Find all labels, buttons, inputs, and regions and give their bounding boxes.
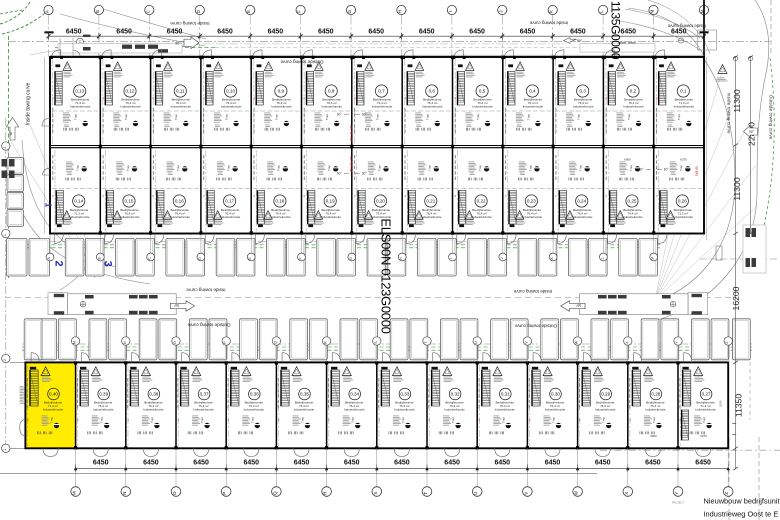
svg-text:Industriefunctie: Industriefunctie [171, 105, 192, 109]
svg-text:16200: 16200 [731, 286, 741, 310]
svg-text:90°: 90° [175, 42, 181, 46]
svg-text:Trap: Trap [275, 114, 279, 120]
svg-text:0,11: 0,11 [176, 89, 185, 94]
svg-text:0,17: 0,17 [225, 199, 234, 204]
svg-text:6450: 6450 [570, 29, 586, 36]
svg-text:0,21: 0,21 [426, 199, 435, 204]
svg-text:6450: 6450 [344, 459, 360, 466]
svg-text:6450: 6450 [66, 29, 82, 36]
svg-text:0,7: 0,7 [378, 89, 385, 94]
svg-text:N: N [122, 492, 127, 495]
svg-text:X: X [625, 341, 629, 344]
svg-text:M: M [72, 491, 77, 495]
svg-text:Industriefunctie: Industriefunctie [472, 105, 493, 109]
svg-text:Industriefunctie: Industriefunctie [674, 105, 695, 109]
svg-text:G: G [349, 257, 353, 260]
svg-text:Trap: Trap [528, 165, 532, 171]
svg-text:Industriefunctie: Industriefunctie [93, 408, 114, 412]
svg-text:W: W [575, 340, 579, 344]
svg-text:11300: 11300 [732, 177, 742, 200]
svg-text:Outside towing curve: Outside towing curve [280, 60, 323, 65]
svg-text:Industriefunctie: Industriefunctie [193, 408, 214, 412]
svg-text:Industriefunctie: Industriefunctie [271, 105, 292, 109]
svg-text:6450: 6450 [294, 459, 310, 466]
svg-text:6450: 6450 [419, 29, 435, 36]
svg-text:M: M [650, 10, 655, 14]
svg-text:Trap: Trap [325, 114, 329, 120]
svg-text:S: S [374, 341, 378, 344]
svg-text:Trap: Trap [224, 114, 228, 120]
svg-text:6450: 6450 [167, 29, 183, 36]
svg-text:11300: 11300 [732, 89, 742, 112]
svg-text:Trap: Trap [602, 417, 606, 423]
svg-text:90°: 90° [575, 303, 581, 307]
svg-text:Inside towing curve: Inside towing curve [667, 24, 706, 29]
svg-text:Industriefunctie: Industriefunctie [673, 215, 694, 219]
svg-text:Trap: Trap [579, 165, 583, 171]
svg-text:6450: 6450 [116, 29, 132, 36]
svg-text:Industriefunctie: Industriefunctie [545, 408, 566, 412]
svg-text:Y: Y [674, 492, 679, 495]
svg-text:6450: 6450 [394, 459, 410, 466]
svg-text:60: 60 [254, 194, 256, 197]
svg-text:6450: 6450 [671, 29, 687, 36]
svg-text:0,18: 0,18 [275, 199, 284, 204]
svg-text:60: 60 [254, 96, 256, 99]
svg-text:Industriefunctie: Industriefunctie [444, 408, 465, 412]
svg-text:Industriefunctie: Industriefunctie [69, 215, 90, 219]
svg-text:0,35: 0,35 [300, 392, 309, 397]
svg-text:Trap: Trap [526, 114, 530, 120]
svg-text:Industriefunctie: Industriefunctie [119, 215, 140, 219]
svg-text:Trap: Trap [327, 165, 331, 171]
svg-text:6375: 6375 [680, 158, 687, 162]
svg-text:1: 1 [3, 234, 7, 236]
svg-text:Trap: Trap [375, 114, 379, 120]
svg-text:0,23: 0,23 [527, 199, 536, 204]
svg-text:Trap: Trap [428, 165, 432, 171]
svg-text:0,39: 0,39 [99, 392, 108, 397]
svg-text:Trap: Trap [277, 165, 281, 171]
svg-text:ELS00N 0123G0000: ELS00N 0123G0000 [379, 218, 394, 333]
svg-text:Industriefunctie: Industriefunctie [143, 408, 164, 412]
svg-text:Trap: Trap [176, 165, 180, 171]
svg-text:60°: 60° [337, 171, 343, 175]
svg-text:6450: 6450 [695, 459, 711, 466]
svg-text:0,28: 0,28 [651, 392, 660, 397]
svg-text:Industriefunctie: Industriefunctie [522, 215, 543, 219]
svg-text:O: O [172, 491, 177, 495]
svg-text:Industriefunctie: Industriefunctie [695, 408, 716, 412]
svg-text:0,19: 0,19 [326, 199, 335, 204]
svg-text:60°: 60° [362, 171, 368, 175]
svg-text:1: 1 [44, 203, 53, 208]
svg-text:Trap: Trap [250, 417, 254, 423]
svg-text:0,32: 0,32 [451, 392, 460, 397]
svg-text:F: F [299, 257, 303, 259]
svg-text:Industriefunctie: Industriefunctie [622, 215, 643, 219]
svg-text:P: P [222, 492, 227, 495]
svg-text:Trap: Trap [652, 417, 656, 423]
svg-text:0,20: 0,20 [376, 199, 385, 204]
svg-text:6450: 6450 [520, 29, 536, 36]
svg-text:H: H [397, 10, 402, 13]
svg-text:M: M [651, 257, 655, 260]
svg-text:0,8: 0,8 [328, 89, 335, 94]
svg-text:Industriefunctie: Industriefunctie [573, 105, 594, 109]
svg-text:Industriefunctie: Industriefunctie [523, 105, 544, 109]
svg-text:Trap: Trap [552, 417, 556, 423]
svg-text:Nieuwbouw bedrijfsunit: Nieuwbouw bedrijfsunit [704, 497, 780, 506]
svg-text:O: O [173, 341, 177, 344]
svg-text:90°: 90° [749, 130, 755, 134]
svg-text:Industriefunctie: Industriefunctie [294, 408, 315, 412]
svg-text:W: W [574, 490, 579, 495]
svg-text:Inside towing curve: Inside towing curve [726, 92, 732, 133]
svg-text:0,24: 0,24 [577, 199, 586, 204]
svg-text:0,2: 0,2 [630, 89, 637, 94]
svg-text:Trap: Trap [50, 417, 54, 423]
svg-text:Trap: Trap [150, 417, 154, 423]
svg-text:6900: 6900 [624, 158, 631, 162]
svg-text:Y: Y [675, 341, 679, 344]
svg-text:Industriefunctie: Industriefunctie [170, 215, 191, 219]
svg-text:Industriefunctie: Industriefunctie [421, 215, 442, 219]
svg-text:Industriefunctie: Industriefunctie [422, 105, 443, 109]
svg-text:6450: 6450 [193, 459, 209, 466]
svg-text:0,26: 0,26 [678, 199, 687, 204]
svg-text:L: L [599, 10, 604, 13]
svg-text:U: U [474, 341, 478, 344]
svg-text:0,34: 0,34 [350, 392, 359, 397]
svg-text:Q: Q [273, 341, 277, 344]
svg-text:0,9: 0,9 [278, 89, 285, 94]
svg-text:I: I [449, 258, 453, 259]
svg-text:6000: 6000 [650, 434, 657, 438]
svg-text:Trap: Trap [100, 417, 104, 423]
svg-text:Inside towing curve: Inside towing curve [513, 289, 552, 294]
svg-text:N: N [123, 341, 127, 344]
svg-text:6450: 6450 [595, 459, 611, 466]
svg-text:Trap: Trap [451, 417, 455, 423]
svg-text:U: U [473, 492, 478, 495]
svg-text:11350: 11350 [733, 394, 743, 417]
svg-text:Industriefunctie: Industriefunctie [344, 408, 365, 412]
svg-text:0,12: 0,12 [126, 89, 135, 94]
svg-text:90°: 90° [173, 303, 179, 307]
svg-text:Industrieweg Oost te E: Industrieweg Oost te E [704, 510, 779, 519]
svg-text:J: J [500, 257, 504, 259]
svg-text:6450: 6450 [244, 459, 260, 466]
svg-text:F: F [297, 10, 302, 13]
svg-text:0,1: 0,1 [680, 89, 687, 94]
svg-text:Trap: Trap [501, 417, 505, 423]
svg-text:P: P [223, 341, 227, 344]
svg-text:6450: 6450 [495, 459, 511, 466]
svg-text:0,25: 0,25 [628, 199, 637, 204]
svg-text:Industriefunctie: Industriefunctie [645, 408, 666, 412]
svg-text:Wm-Bw 60: Wm-Bw 60 [349, 125, 353, 141]
svg-text:Trap: Trap [702, 417, 706, 423]
svg-text:Trap: Trap [577, 114, 581, 120]
svg-text:0,36: 0,36 [250, 392, 259, 397]
svg-text:Q: Q [272, 491, 277, 495]
svg-text:Industriefunctie: Industriefunctie [471, 215, 492, 219]
svg-text:Inside towing curve: Inside towing curve [26, 82, 32, 125]
svg-text:Industriefunctie: Industriefunctie [43, 408, 64, 412]
svg-text:Industriefunctie: Industriefunctie [372, 105, 393, 109]
svg-text:Trap: Trap [301, 417, 305, 423]
svg-text:0,4: 0,4 [529, 89, 536, 94]
svg-text:T: T [423, 492, 428, 495]
svg-text:Trap: Trap [351, 417, 355, 423]
svg-text:Industriefunctie: Industriefunctie [120, 105, 141, 109]
svg-text:Trap: Trap [174, 114, 178, 120]
svg-text:60°: 60° [337, 112, 343, 116]
svg-text:6450: 6450 [143, 459, 159, 466]
svg-text:Outside towing curve: Outside towing curve [514, 324, 557, 329]
svg-text:0,30: 0,30 [551, 392, 560, 397]
svg-text:Outside towing curve: Outside towing curve [187, 323, 230, 328]
svg-text:60°: 60° [664, 168, 670, 172]
svg-text:0,29: 0,29 [601, 392, 610, 397]
svg-text:6450: 6450 [645, 459, 661, 466]
svg-text:Industriefunctie: Industriefunctie [244, 408, 265, 412]
svg-text:0,3: 0,3 [580, 89, 587, 94]
svg-text:G: G [347, 9, 352, 13]
svg-text:60°: 60° [639, 168, 645, 172]
svg-text:Z: Z [724, 492, 729, 495]
svg-text:1135G0000: 1135G0000 [609, 1, 623, 60]
svg-text:Industriefunctie: Industriefunctie [220, 215, 241, 219]
svg-text:0,5: 0,5 [479, 89, 486, 94]
svg-text:2: 2 [53, 260, 65, 266]
svg-text:Trap: Trap [677, 114, 681, 120]
svg-text:Trap: Trap [124, 114, 128, 120]
svg-text:Trap: Trap [627, 114, 631, 120]
svg-text:0,27: 0,27 [702, 392, 711, 397]
svg-text:B: B [95, 10, 100, 13]
svg-text:J: J [498, 10, 503, 12]
svg-text:Trap: Trap [226, 165, 230, 171]
svg-text:Industriefunctie: Industriefunctie [394, 408, 415, 412]
svg-text:X: X [624, 492, 629, 495]
svg-text:Inside towing curve: Inside towing curve [529, 21, 568, 26]
svg-text:0,40: 0,40 [49, 392, 58, 397]
svg-text:2: 2 [3, 146, 7, 148]
svg-text:0,14: 0,14 [74, 199, 83, 204]
svg-text:6450: 6450 [368, 29, 384, 36]
svg-text:11025: 11025 [719, 400, 723, 408]
svg-text:3: 3 [102, 261, 114, 267]
svg-text:0,37: 0,37 [200, 392, 209, 397]
svg-text:6450: 6450 [93, 459, 109, 466]
svg-text:90°: 90° [577, 39, 583, 43]
svg-text:0,31: 0,31 [501, 392, 510, 397]
svg-text:60°: 60° [362, 112, 368, 116]
svg-text:0,33: 0,33 [400, 392, 409, 397]
svg-text:6450: 6450 [444, 459, 460, 466]
svg-text:PROJECT: PROJECT [672, 501, 685, 505]
svg-text:Trap: Trap [377, 165, 381, 171]
svg-text:Trap: Trap [426, 114, 430, 120]
svg-text:S: S [373, 492, 378, 495]
svg-text:E: E [246, 10, 251, 13]
svg-text:Trap: Trap [200, 417, 204, 423]
svg-text:0,16: 0,16 [175, 199, 184, 204]
svg-text:6375: 6375 [700, 434, 707, 438]
svg-text:Industriefunctie: Industriefunctie [221, 105, 242, 109]
svg-text:Trap: Trap [74, 114, 78, 120]
svg-text:0,38: 0,38 [149, 392, 158, 397]
svg-text:I: I [448, 11, 453, 12]
svg-text:6450: 6450 [268, 29, 284, 36]
svg-text:Wm-Bw 60: Wm-Bw 60 [349, 156, 353, 172]
svg-text:Inside towing curve: Inside towing curve [170, 21, 210, 26]
svg-text:90°: 90° [9, 130, 13, 136]
svg-text:Industriefunctie: Industriefunctie [70, 105, 91, 109]
svg-text:Industriefunctie: Industriefunctie [321, 215, 342, 219]
svg-text:Outside towing curve: Outside towing curve [768, 95, 774, 140]
svg-text:V: V [524, 341, 528, 344]
svg-text:0,22: 0,22 [477, 199, 486, 204]
svg-text:Trap: Trap [478, 165, 482, 171]
svg-text:L: L [600, 257, 604, 259]
svg-text:Trap: Trap [679, 165, 683, 171]
svg-text:0,10: 0,10 [226, 89, 235, 94]
svg-text:6450: 6450 [545, 459, 561, 466]
svg-text:Trap: Trap [401, 417, 405, 423]
svg-text:Industriefunctie: Industriefunctie [495, 408, 516, 412]
svg-text:0,6: 0,6 [429, 89, 436, 94]
svg-text:6450: 6450 [469, 29, 485, 36]
svg-text:Trap: Trap [629, 165, 633, 171]
svg-text:Industriefunctie: Industriefunctie [270, 215, 291, 219]
svg-text:Industriefunctie: Industriefunctie [595, 408, 616, 412]
svg-text:1: 1 [3, 449, 7, 451]
svg-text:0,15: 0,15 [125, 199, 134, 204]
svg-text:2: 2 [3, 359, 7, 361]
svg-text:Industriefunctie: Industriefunctie [623, 105, 644, 109]
svg-text:6450: 6450 [217, 29, 233, 36]
svg-text:M: M [73, 341, 77, 344]
svg-text:6450: 6450 [318, 29, 334, 36]
svg-text:Trap: Trap [126, 165, 130, 171]
svg-text:WB 60: WB 60 [695, 166, 699, 176]
svg-text:Trap: Trap [476, 114, 480, 120]
svg-text:R: R [324, 341, 328, 344]
svg-text:Trap: Trap [76, 165, 80, 171]
svg-text:Inside towing curve: Inside towing curve [186, 287, 226, 292]
svg-text:Industriefunctie: Industriefunctie [322, 105, 343, 109]
svg-text:Industriefunctie: Industriefunctie [572, 215, 593, 219]
svg-text:0,13: 0,13 [75, 89, 84, 94]
